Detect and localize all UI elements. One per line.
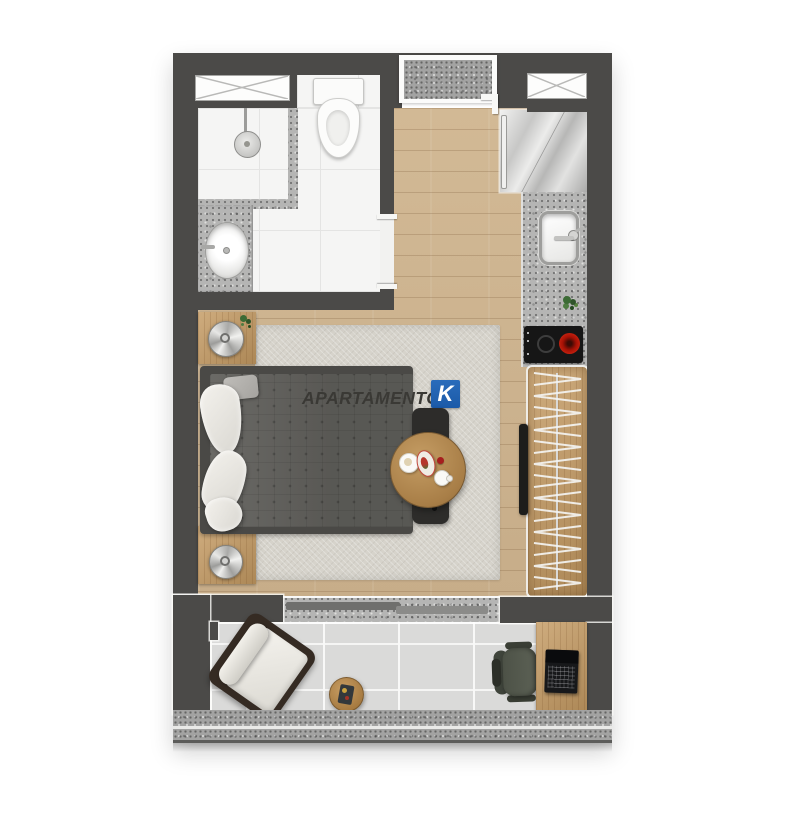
fridge-handle bbox=[501, 115, 507, 189]
brand-k-logo: K bbox=[431, 380, 460, 408]
entry-jamb-b bbox=[492, 94, 498, 114]
plate-food bbox=[404, 458, 412, 466]
door-jamb-bottom bbox=[377, 284, 397, 289]
bathroom-door-opening bbox=[380, 218, 394, 287]
wall-balcony-left bbox=[173, 595, 210, 714]
hangers-icon bbox=[528, 367, 587, 596]
chair-seat bbox=[502, 647, 538, 696]
parapet-band-inner bbox=[173, 729, 612, 740]
wall-window2-under bbox=[527, 97, 587, 112]
parapet-band-outer bbox=[173, 710, 612, 726]
lamp-top-ring bbox=[220, 333, 230, 343]
cup-handle bbox=[446, 475, 453, 482]
side-table-tray bbox=[337, 684, 354, 705]
sliding-door-leaf-2 bbox=[396, 606, 488, 614]
wall-balcony-right bbox=[587, 623, 612, 714]
wall-bathroom-bottom bbox=[173, 292, 394, 310]
wall-right bbox=[587, 75, 612, 598]
tray-item-red bbox=[345, 696, 349, 700]
laptop-keyboard bbox=[547, 666, 575, 689]
laptop-icon bbox=[544, 649, 578, 693]
fridge bbox=[500, 110, 587, 192]
entry-threshold bbox=[404, 60, 492, 99]
cooktop-controls bbox=[527, 332, 529, 334]
brand-wordmark: APARTAMENTO bbox=[302, 387, 440, 409]
side-table bbox=[329, 677, 364, 712]
wall-entry-window2 bbox=[494, 73, 527, 108]
sink-faucet-spout bbox=[554, 236, 574, 240]
wall-balcony-step bbox=[210, 622, 218, 640]
wall-bathroom-right-upper bbox=[380, 108, 394, 218]
chair-headrest bbox=[492, 659, 502, 687]
shower-head-center bbox=[244, 141, 250, 147]
tray-item-gold bbox=[342, 688, 347, 693]
laptop-screen bbox=[545, 649, 578, 663]
wall-left bbox=[173, 108, 198, 595]
plan-bottom-shade bbox=[173, 743, 612, 752]
berry-drink-icon bbox=[437, 457, 444, 464]
shower-border-vertical bbox=[288, 108, 298, 209]
burner-on-red bbox=[559, 333, 580, 354]
floor-plan-apartment-k: APARTAMENTO K bbox=[0, 0, 800, 819]
lamp-bottom-ring bbox=[220, 556, 230, 566]
burner-off bbox=[537, 335, 555, 353]
door-jamb-top bbox=[377, 214, 397, 219]
sliding-door-leaf-1 bbox=[286, 602, 400, 610]
vanity-drain bbox=[223, 247, 230, 254]
tv-icon bbox=[519, 424, 528, 515]
wall-top bbox=[173, 53, 612, 75]
herb-plant-icon bbox=[563, 296, 571, 304]
window-kitchen bbox=[527, 73, 587, 99]
wall-bedroom-bottom-right bbox=[500, 597, 612, 623]
plant-nightstand-icon bbox=[240, 315, 247, 322]
vanity-faucet-icon bbox=[201, 245, 215, 249]
window-bathroom bbox=[195, 75, 290, 101]
